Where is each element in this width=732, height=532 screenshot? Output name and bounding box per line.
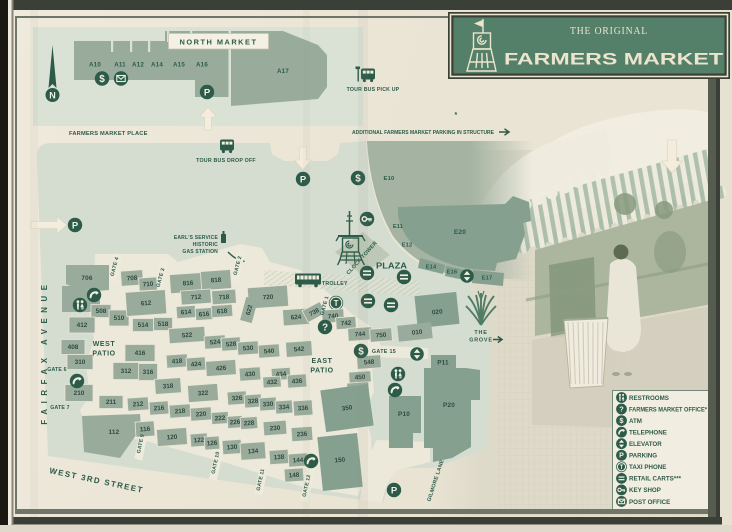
svg-text:712: 712 [190, 294, 202, 302]
svg-text:THE: THE [474, 330, 487, 336]
svg-text:FARMERS MARKET PLACE: FARMERS MARKET PLACE [69, 131, 148, 137]
svg-text:E11: E11 [393, 224, 403, 230]
svg-text:230: 230 [269, 425, 281, 433]
svg-text:TOUR BUS DROP OFF: TOUR BUS DROP OFF [196, 158, 256, 164]
svg-text:706: 706 [81, 275, 93, 282]
svg-text:?: ? [619, 405, 624, 414]
svg-text:430: 430 [244, 371, 256, 379]
svg-text:E16: E16 [447, 270, 458, 276]
svg-text:EAST: EAST [311, 358, 332, 365]
svg-text:718: 718 [218, 294, 230, 302]
svg-text:328: 328 [247, 398, 259, 406]
svg-text:P20: P20 [443, 402, 455, 409]
svg-text:T: T [620, 465, 624, 471]
svg-text:220: 220 [195, 411, 207, 419]
svg-text:416: 416 [135, 350, 146, 357]
svg-text:?: ? [322, 322, 328, 333]
svg-text:708: 708 [126, 275, 138, 283]
svg-text:E10: E10 [384, 176, 395, 182]
svg-text:NORTH MARKET: NORTH MARKET [180, 37, 258, 46]
svg-text:424: 424 [190, 361, 202, 369]
svg-text:E20: E20 [454, 229, 466, 236]
svg-text:120: 120 [166, 434, 178, 442]
svg-text:GATE 15: GATE 15 [372, 349, 396, 355]
svg-text:436: 436 [291, 378, 303, 386]
svg-text:N: N [49, 90, 56, 100]
svg-text:334: 334 [278, 404, 290, 412]
svg-text:540: 540 [263, 348, 275, 356]
svg-text:130: 130 [226, 444, 238, 452]
svg-text:FAIRFAX AVENUE: FAIRFAX AVENUE [40, 279, 49, 424]
svg-text:PLAZA: PLAZA [376, 261, 407, 271]
svg-text:522: 522 [181, 332, 193, 340]
svg-text:750: 750 [375, 332, 387, 340]
svg-text:612: 612 [140, 300, 152, 308]
svg-text:010: 010 [411, 329, 423, 337]
svg-text:112: 112 [109, 429, 120, 436]
svg-text:310: 310 [75, 359, 86, 366]
svg-text:408: 408 [68, 344, 79, 351]
svg-text:A16: A16 [196, 62, 208, 69]
svg-text:742: 742 [340, 320, 352, 328]
svg-text:212: 212 [132, 401, 144, 409]
svg-text:412: 412 [77, 322, 88, 329]
svg-text:T: T [334, 299, 339, 308]
svg-text:126: 126 [206, 440, 218, 448]
svg-text:211: 211 [106, 399, 117, 406]
svg-text:TELEPHONE: TELEPHONE [629, 429, 667, 436]
svg-text:E17: E17 [482, 276, 493, 282]
svg-text:A11: A11 [114, 62, 126, 69]
svg-text:624: 624 [290, 314, 302, 322]
svg-text:GATE 7: GATE 7 [50, 405, 70, 411]
svg-text:616: 616 [198, 311, 210, 319]
svg-text:PATIO: PATIO [92, 351, 115, 358]
svg-text:222: 222 [214, 415, 226, 423]
svg-text:A15: A15 [173, 62, 185, 69]
svg-text:322: 322 [197, 390, 209, 398]
svg-text:418: 418 [171, 358, 183, 366]
svg-text:ELEVATOR: ELEVATOR [629, 441, 662, 448]
svg-text:PARKING: PARKING [629, 453, 657, 460]
svg-text:218: 218 [174, 408, 186, 416]
svg-text:RESTROOMS: RESTROOMS [629, 395, 669, 402]
svg-text:020: 020 [432, 308, 444, 316]
svg-text:THE ORIGINAL: THE ORIGINAL [570, 25, 648, 37]
svg-text:720: 720 [262, 294, 274, 302]
svg-text:E14: E14 [426, 265, 437, 271]
svg-text:P: P [72, 220, 79, 231]
svg-text:A10: A10 [89, 62, 101, 69]
svg-text:210: 210 [74, 390, 85, 397]
svg-text:514: 514 [138, 322, 149, 329]
svg-text:P11: P11 [437, 360, 449, 367]
svg-text:228: 228 [243, 420, 255, 428]
svg-text:226: 226 [229, 419, 241, 427]
svg-text:WEST: WEST [93, 341, 116, 348]
svg-text:518: 518 [158, 321, 169, 328]
svg-text:P: P [619, 452, 624, 460]
svg-text:528: 528 [225, 341, 237, 349]
svg-text:530: 530 [242, 345, 254, 353]
svg-text:618: 618 [216, 308, 228, 316]
svg-text:A14: A14 [151, 62, 163, 69]
svg-text:326: 326 [231, 395, 243, 403]
svg-text:316: 316 [143, 369, 154, 376]
svg-text:710: 710 [142, 281, 154, 289]
svg-text:TOUR BUS PICK UP: TOUR BUS PICK UP [347, 87, 400, 93]
svg-text:818: 818 [210, 277, 222, 285]
svg-text:148: 148 [288, 472, 300, 480]
svg-text:134: 134 [247, 448, 259, 456]
svg-text:GROVE: GROVE [469, 338, 492, 344]
svg-text:508: 508 [96, 308, 107, 315]
svg-text:816: 816 [182, 280, 194, 288]
svg-text:ATM: ATM [629, 418, 642, 425]
svg-text:*: * [455, 112, 458, 119]
svg-text:$: $ [99, 74, 105, 85]
svg-text:A17: A17 [277, 68, 289, 75]
svg-text:EARL'S SERVICE: EARL'S SERVICE [174, 235, 219, 241]
svg-text:P: P [391, 485, 398, 496]
svg-text:318: 318 [162, 383, 174, 391]
svg-text:RETAIL CARTS***: RETAIL CARTS*** [629, 476, 682, 483]
svg-text:A12: A12 [132, 62, 144, 69]
svg-text:614: 614 [180, 309, 192, 317]
svg-text:P10: P10 [398, 411, 410, 418]
svg-text:PATIO: PATIO [310, 368, 333, 375]
svg-text:312: 312 [121, 368, 132, 375]
svg-text:144: 144 [292, 457, 304, 465]
svg-text:POST OFFICE: POST OFFICE [629, 499, 670, 506]
svg-text:HISTORIC: HISTORIC [193, 242, 219, 248]
svg-text:330: 330 [262, 401, 274, 409]
svg-text:TROLLEY: TROLLEY [322, 281, 348, 287]
svg-text:426: 426 [215, 365, 227, 373]
svg-text:122: 122 [193, 437, 205, 445]
svg-text:P: P [204, 87, 211, 98]
svg-text:216: 216 [153, 405, 165, 413]
svg-text:FARMERS MARKET: FARMERS MARKET [504, 50, 724, 69]
svg-text:TAXI PHONE: TAXI PHONE [629, 464, 666, 471]
svg-text:FARMERS MARKET OFFICE*: FARMERS MARKET OFFICE* [629, 406, 708, 413]
svg-text:GAS STATION: GAS STATION [182, 249, 218, 255]
svg-text:432: 432 [266, 379, 278, 387]
svg-text:510: 510 [114, 315, 125, 322]
svg-text:116: 116 [140, 426, 151, 434]
svg-text:GATE 6: GATE 6 [47, 367, 67, 373]
svg-text:150: 150 [334, 456, 346, 464]
svg-text:ADDITIONAL FARMERS MARKET PARK: ADDITIONAL FARMERS MARKET PARKING IN STR… [352, 130, 494, 136]
svg-text:524: 524 [209, 339, 221, 347]
svg-text:138: 138 [273, 454, 285, 462]
svg-text:KEY SHOP: KEY SHOP [629, 487, 661, 494]
svg-text:E12: E12 [402, 243, 413, 249]
